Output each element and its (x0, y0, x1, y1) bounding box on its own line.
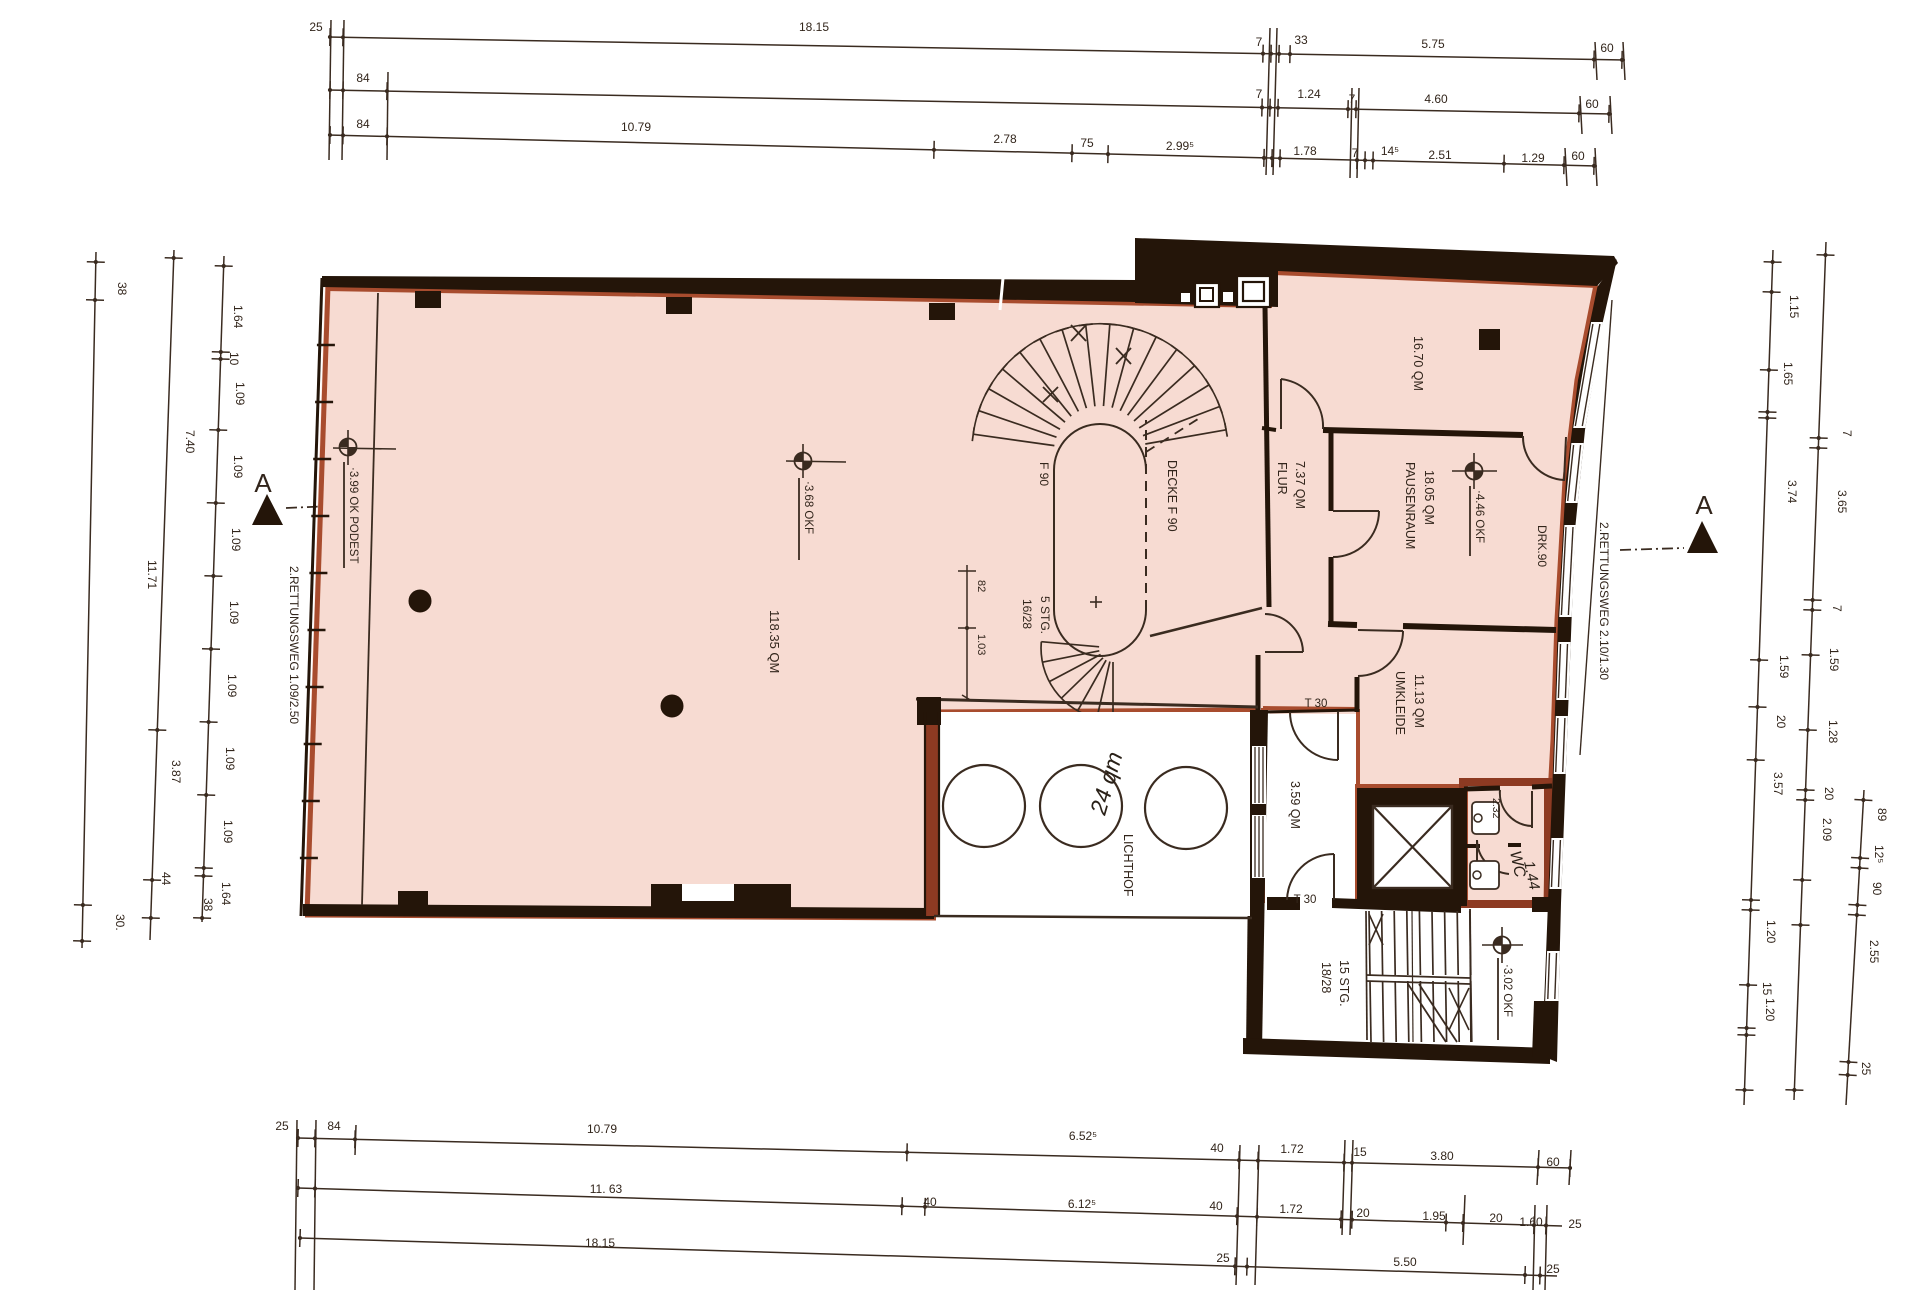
svg-text:5.50: 5.50 (1393, 1255, 1417, 1269)
svg-text:10: 10 (227, 352, 241, 366)
svg-text:10.79: 10.79 (621, 120, 651, 134)
svg-text:20: 20 (1774, 715, 1788, 729)
svg-text:10.79: 10.79 (587, 1122, 617, 1136)
svg-text:DRK.90: DRK.90 (1535, 525, 1549, 567)
svg-text:A: A (1695, 490, 1713, 520)
svg-text:·4.46 OKF: ·4.46 OKF (1473, 490, 1485, 543)
svg-text:F 90: F 90 (1037, 462, 1051, 486)
svg-text:1.78: 1.78 (1293, 144, 1317, 158)
svg-text:3.87: 3.87 (169, 760, 183, 784)
svg-text:7: 7 (1830, 605, 1844, 612)
svg-text:75: 75 (1080, 136, 1094, 150)
svg-text:·3.99 OK PODEST: ·3.99 OK PODEST (347, 467, 359, 564)
svg-text:1.72: 1.72 (1279, 1202, 1303, 1216)
svg-text:3.59 QM: 3.59 QM (1288, 781, 1302, 829)
svg-text:40: 40 (923, 1195, 937, 1209)
svg-text:2.09: 2.09 (1820, 818, 1834, 842)
svg-text:1.59: 1.59 (1777, 655, 1791, 679)
svg-text:LICHTHOF: LICHTHOF (1121, 834, 1135, 897)
svg-text:82: 82 (975, 580, 987, 592)
svg-text:60: 60 (1600, 41, 1614, 55)
svg-text:DECKE F 90: DECKE F 90 (1165, 460, 1179, 532)
svg-text:11.71: 11.71 (145, 560, 159, 589)
svg-text:1.09: 1.09 (227, 601, 241, 625)
svg-text:4.60: 4.60 (1424, 92, 1448, 106)
svg-text:·3.68 OKF: ·3.68 OKF (802, 481, 814, 534)
svg-text:16.70 QM: 16.70 QM (1411, 336, 1425, 391)
svg-text:1.24: 1.24 (1297, 87, 1321, 101)
svg-text:18.05 QM: 18.05 QM (1422, 470, 1436, 525)
svg-text:5.75: 5.75 (1421, 37, 1445, 51)
svg-text:1.65: 1.65 (1781, 362, 1795, 386)
svg-text:15: 15 (1353, 1145, 1367, 1159)
svg-text:11. 63: 11. 63 (590, 1182, 623, 1196)
svg-text:14⁵: 14⁵ (1381, 144, 1399, 158)
svg-text:33: 33 (1294, 33, 1308, 47)
svg-text:1.15: 1.15 (1787, 295, 1801, 319)
svg-text:20: 20 (1489, 1211, 1503, 1225)
svg-text:25: 25 (1216, 1251, 1230, 1265)
svg-text:FLUR: FLUR (1275, 462, 1289, 495)
svg-text:PAUSENRAUM: PAUSENRAUM (1403, 462, 1417, 549)
svg-text:2.32: 2.32 (1490, 798, 1502, 819)
svg-text:7.40: 7.40 (183, 430, 197, 454)
svg-text:89: 89 (1875, 808, 1889, 822)
svg-text:1.09: 1.09 (225, 674, 239, 698)
svg-text:1.09: 1.09 (231, 455, 245, 479)
svg-text:18.15: 18.15 (799, 20, 829, 34)
svg-text:44: 44 (159, 872, 173, 886)
svg-text:1.95: 1.95 (1422, 1209, 1446, 1223)
svg-text:30.: 30. (113, 914, 127, 931)
svg-text:7: 7 (1256, 35, 1263, 49)
svg-text:5 STG.: 5 STG. (1038, 596, 1052, 634)
svg-text:7.37 QM: 7.37 QM (1293, 461, 1307, 509)
svg-text:6.12⁵: 6.12⁵ (1068, 1197, 1096, 1211)
svg-text:84: 84 (356, 117, 370, 131)
svg-text:2.RETTUNGSWEG 1.09/2.50: 2.RETTUNGSWEG 1.09/2.50 (287, 566, 301, 724)
svg-text:40: 40 (1209, 1199, 1223, 1213)
svg-text:25: 25 (1546, 1262, 1560, 1276)
svg-text:T 30: T 30 (1294, 894, 1317, 906)
svg-text:18/28: 18/28 (1319, 962, 1333, 993)
svg-text:1.09: 1.09 (223, 747, 237, 771)
svg-text:40: 40 (1210, 1141, 1224, 1155)
svg-text:38: 38 (115, 282, 129, 296)
svg-text:84: 84 (356, 71, 370, 85)
svg-text:16/28: 16/28 (1020, 599, 1034, 629)
svg-text:3.57: 3.57 (1771, 772, 1785, 796)
svg-text:60: 60 (1546, 1155, 1560, 1169)
svg-text:20: 20 (1356, 1206, 1370, 1220)
svg-text:T 30: T 30 (1305, 698, 1328, 710)
svg-text:1.09: 1.09 (229, 528, 243, 552)
svg-text:25: 25 (1568, 1217, 1582, 1231)
svg-text:84: 84 (327, 1119, 341, 1133)
svg-text:A: A (254, 468, 272, 498)
svg-text:3.65: 3.65 (1835, 490, 1849, 514)
svg-text:6.52⁵: 6.52⁵ (1069, 1129, 1097, 1143)
svg-text:1.09: 1.09 (221, 820, 235, 844)
svg-text:25: 25 (275, 1119, 289, 1133)
svg-text:90: 90 (1870, 882, 1884, 896)
svg-text:2.99⁵: 2.99⁵ (1166, 139, 1194, 153)
svg-text:2.78: 2.78 (993, 132, 1017, 146)
svg-text:1.29: 1.29 (1521, 151, 1545, 165)
svg-text:11.13 QM: 11.13 QM (1412, 674, 1426, 728)
svg-text:25: 25 (1859, 1062, 1873, 1076)
svg-text:1.64: 1.64 (219, 882, 233, 906)
svg-text:·3.02 OKF: ·3.02 OKF (1501, 964, 1513, 1017)
svg-text:118.35 QM: 118.35 QM (767, 610, 782, 673)
svg-text:25: 25 (309, 20, 323, 34)
svg-text:18.15: 18.15 (585, 1236, 615, 1250)
svg-text:1.09: 1.09 (233, 382, 247, 406)
svg-text:3.74: 3.74 (1785, 480, 1799, 504)
svg-text:UMKLEIDE: UMKLEIDE (1393, 671, 1407, 735)
svg-text:1.64: 1.64 (231, 305, 245, 329)
svg-text:7: 7 (1840, 430, 1854, 437)
svg-text:15: 15 (1760, 982, 1774, 996)
svg-text:3.80: 3.80 (1430, 1149, 1454, 1163)
svg-text:20: 20 (1822, 787, 1836, 801)
svg-text:1.03: 1.03 (975, 634, 987, 655)
svg-text:2.RETTUNGSWEG 2.10/1.30: 2.RETTUNGSWEG 2.10/1.30 (1597, 522, 1611, 680)
svg-text:2.55: 2.55 (1867, 940, 1881, 964)
svg-text:60: 60 (1585, 97, 1599, 111)
svg-text:1.59: 1.59 (1827, 648, 1841, 672)
svg-text:2.51: 2.51 (1428, 148, 1452, 162)
svg-text:7: 7 (1256, 87, 1263, 101)
svg-text:1.60: 1.60 (1519, 1215, 1543, 1229)
svg-text:60: 60 (1571, 149, 1585, 163)
svg-text:1.20: 1.20 (1764, 920, 1778, 944)
svg-text:15 STG.: 15 STG. (1337, 960, 1351, 1007)
svg-text:1.28: 1.28 (1826, 720, 1840, 744)
svg-text:1.20: 1.20 (1763, 998, 1777, 1022)
svg-text:12⁵: 12⁵ (1872, 845, 1886, 863)
svg-text:1.72: 1.72 (1280, 1142, 1304, 1156)
